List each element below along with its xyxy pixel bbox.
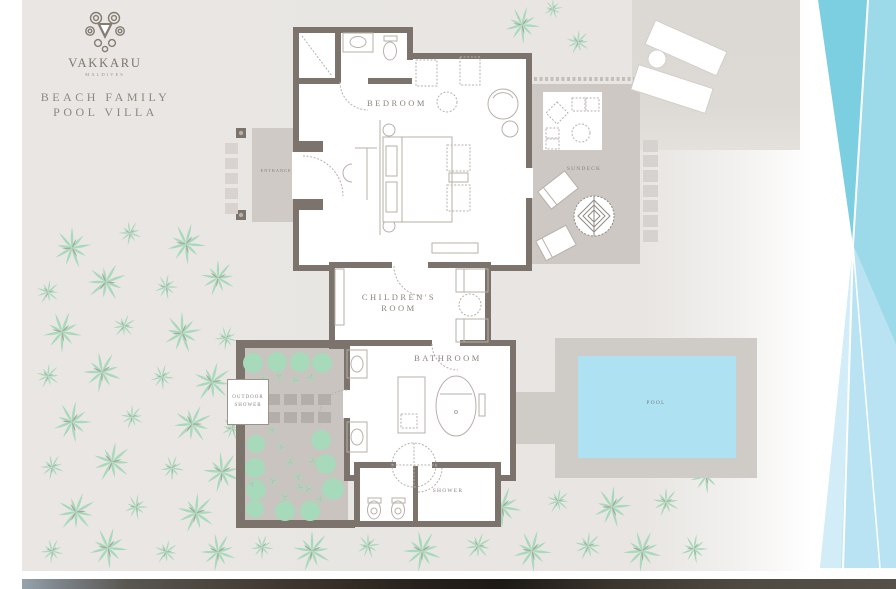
sundeck-label: SUNDECK [546,166,622,172]
beach-sand-area [632,0,800,150]
pool-walkway [513,392,557,444]
childrens-room-label-line2: ROOM [349,303,449,314]
pool-label: POOL [606,400,706,406]
entrance-label: ENTRANCE [252,168,300,173]
childrens-room-label: CHILDREN'S ROOM [349,292,449,314]
brand-name: VAKKARU [30,56,180,71]
brand-location: MALDIVES [30,72,180,77]
villa-title-line2: POOL VILLA [28,105,183,120]
villa-title-line1: BEACH FAMILY [28,90,183,105]
outdoor-shower-label-line1: OUTDOOR [232,394,263,402]
vakkaru-logo-icon [83,8,127,54]
outdoor-shower-label-line2: SHOWER [234,402,261,410]
childrens-room-label-line1: CHILDREN'S [349,292,449,303]
floorplan-page: VAKKARU MALDIVES BEACH FAMILY POOL VILLA… [0,0,896,589]
photo-strip [22,579,896,589]
bedroom-label: BEDROOM [347,98,447,108]
swimming-pool [578,356,736,458]
outdoor-shower-garden [245,348,348,521]
shower-label: SHOWER [410,488,486,494]
villa-title: BEACH FAMILY POOL VILLA [28,90,183,120]
brand-block: VAKKARU MALDIVES [30,8,180,77]
outdoor-shower-label-box: OUTDOOR SHOWER [227,379,269,425]
bathroom-label: BATHROOM [398,353,498,363]
entrance-deck [252,128,300,222]
sundeck-area [532,84,640,264]
